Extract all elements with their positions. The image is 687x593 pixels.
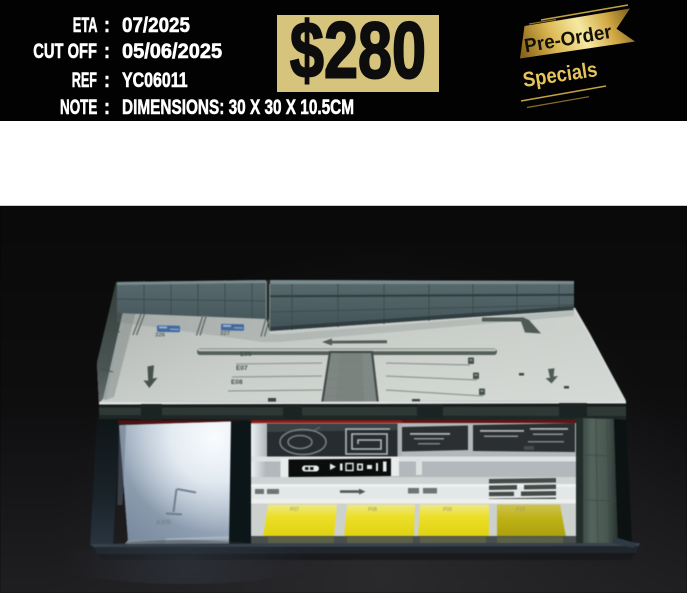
svg-text:326: 326	[155, 333, 165, 339]
svg-text:P09: P09	[443, 507, 452, 513]
svg-text:Specials: Specials	[521, 58, 599, 92]
svg-text:P07: P07	[290, 507, 299, 513]
svg-text:P08: P08	[368, 507, 377, 513]
svg-text:327: 327	[220, 331, 230, 337]
svg-text:E08: E08	[231, 379, 243, 386]
svg-text:P10: P10	[516, 507, 525, 513]
svg-text:E07: E07	[236, 365, 248, 372]
svg-text:AXIS: AXIS	[156, 519, 172, 527]
svg-text:E06: E06	[240, 351, 252, 358]
